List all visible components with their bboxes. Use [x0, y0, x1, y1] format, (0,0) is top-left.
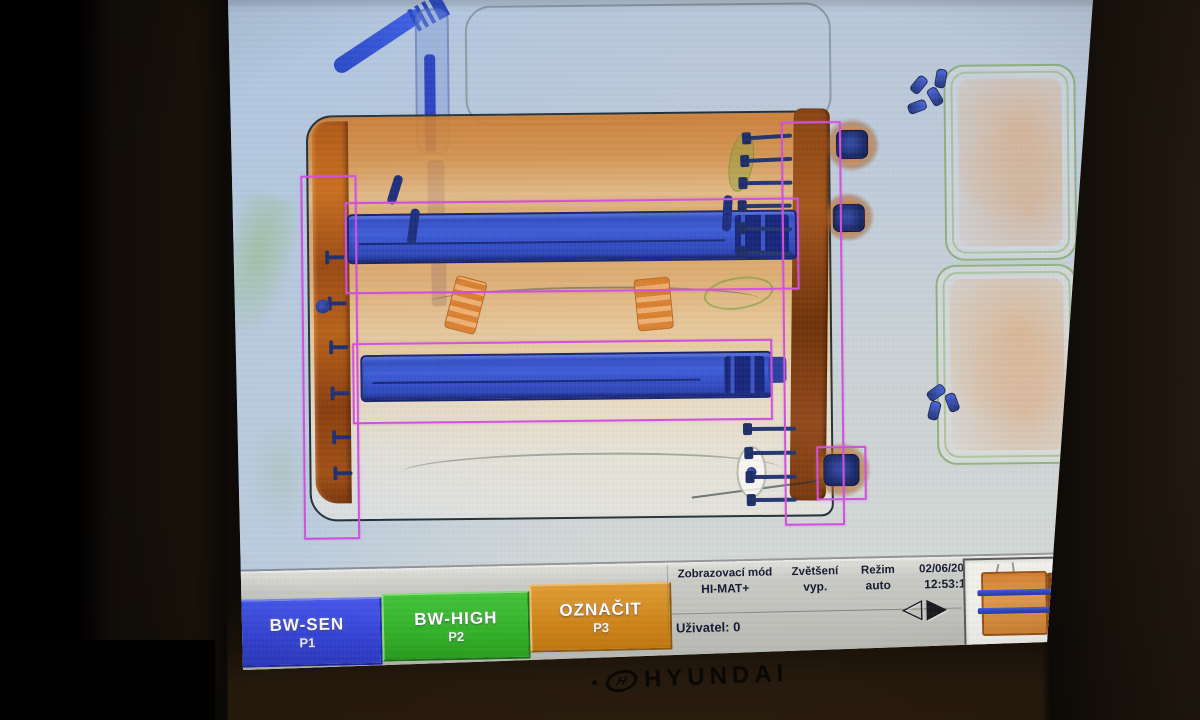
background-tray-outline: [465, 2, 832, 126]
button-key: P3: [593, 619, 609, 634]
detection-box: [345, 198, 800, 295]
mode-status: Režim auto: [849, 563, 908, 608]
thumbnail-suitcase: [981, 571, 1048, 636]
right-triangle-icon: ▶: [926, 593, 947, 623]
bw-high-button[interactable]: BW-HIGH P2: [381, 591, 530, 662]
detection-box: [352, 339, 773, 424]
image-navigation: ◁ ▶: [901, 593, 947, 624]
detection-box: [816, 446, 867, 501]
previous-image-button[interactable]: ◁: [901, 593, 922, 623]
bolt: [926, 86, 945, 108]
button-label: OZNAČIT: [559, 599, 642, 621]
zoom-status: Zvětšení vyp.: [781, 564, 850, 609]
bw-sen-button[interactable]: BW-SEN P1: [231, 597, 382, 668]
user-label: Uživatel: 0: [676, 619, 741, 635]
mode-label: Režim: [849, 563, 907, 579]
suitcase-contents: [949, 278, 1065, 451]
display-mode-status: Zobrazovací mód HI-MAT+: [669, 565, 782, 611]
display-mode-label: Zobrazovací mód: [669, 565, 781, 582]
oznacit-button[interactable]: OZNAČIT P3: [529, 582, 672, 653]
suitcase-right-top: [943, 64, 1077, 261]
hyundai-logo-icon: H: [603, 669, 640, 693]
mode-value: auto: [849, 578, 907, 595]
button-label: BW-SEN: [269, 614, 344, 636]
zoom-value: vyp.: [781, 579, 849, 596]
bolt: [906, 98, 928, 115]
left-triangle-icon: ◁: [901, 593, 922, 623]
photo-of-monitor: BW-SEN P1 BW-HIGH P2 OZNAČIT P3 Zobrazov…: [0, 0, 1200, 720]
monitor-bezel-corner: [0, 640, 215, 720]
button-key: P2: [448, 628, 464, 643]
suitcase-right-bottom: [935, 264, 1079, 465]
reflection-ghost: [249, 412, 310, 533]
power-led: [592, 680, 597, 685]
suitcase-contents: [957, 78, 1063, 247]
next-image-button[interactable]: ▶: [926, 593, 947, 623]
button-label: BW-HIGH: [414, 608, 498, 630]
display-mode-value: HI-MAT+: [669, 580, 781, 598]
zoom-label: Zvětšení: [781, 564, 849, 580]
button-key: P1: [299, 635, 315, 650]
